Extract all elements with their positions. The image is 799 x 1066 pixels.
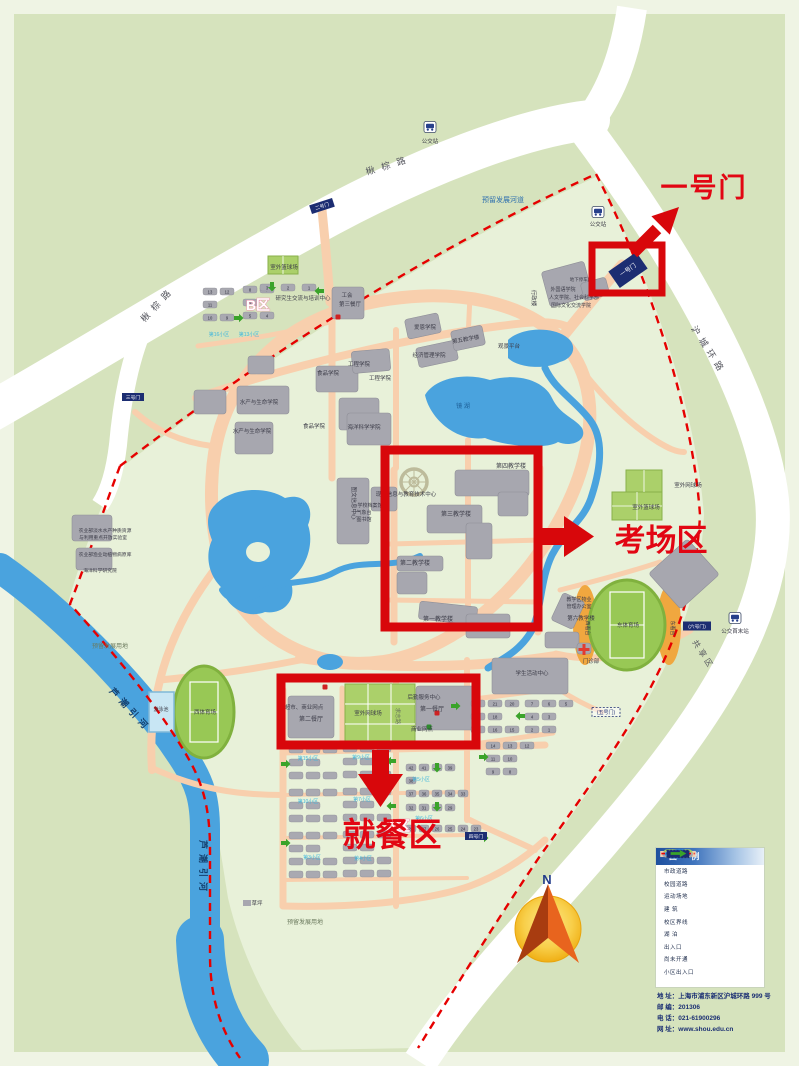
- campus-map: 4241403938373635343332313029282726252423…: [0, 0, 799, 1066]
- map-label: 预留发展河道: [482, 195, 524, 204]
- dorm-number: 15: [510, 727, 515, 732]
- gate-label: 四号门: [469, 833, 484, 840]
- legend-item-label: 出入口: [664, 943, 682, 951]
- map-label: 第7小区: [353, 796, 371, 803]
- map-label: 门诊部: [583, 657, 600, 665]
- map-label: 工程学院: [369, 374, 392, 382]
- dorm-block: [323, 789, 337, 796]
- legend-item: 校区界线: [656, 915, 764, 928]
- bus-icon-wheel: [599, 214, 601, 216]
- map-label: 第三教学楼: [441, 510, 471, 518]
- building: [248, 356, 274, 374]
- building: [316, 366, 358, 392]
- dorm-number: 13: [208, 289, 213, 294]
- dorm-number: 32: [409, 805, 414, 810]
- bus-icon-wheel: [427, 129, 429, 131]
- map-label: 水产与生命学院: [233, 427, 272, 435]
- legend-item: 小区出入口: [656, 966, 764, 979]
- legend-item: 校园道路: [656, 878, 764, 891]
- dorm-number: 31: [422, 805, 427, 810]
- dorm-block: [360, 870, 374, 877]
- dorm-block: [306, 772, 320, 779]
- building: [194, 390, 226, 414]
- gate-label: (六号门): [688, 623, 706, 630]
- map-label: 学生活动中心: [515, 669, 549, 677]
- gate-marker: (六号门): [683, 622, 711, 631]
- map-label: 第三餐厅: [339, 300, 362, 308]
- map-label: 第六教学楼: [567, 614, 595, 622]
- map-label: 商业网点: [411, 725, 434, 733]
- map-label: 公交站: [590, 220, 607, 228]
- map-label: 第13小区: [239, 331, 260, 338]
- compass-north-label: N: [542, 872, 551, 887]
- building: [76, 548, 112, 570]
- dorm-number: 24: [461, 826, 466, 831]
- legend-item: 运动场地: [656, 890, 764, 903]
- legend-item-label: 校园道路: [664, 880, 688, 888]
- bus-icon-body: [731, 615, 739, 619]
- bus-stop-icon: [729, 613, 741, 624]
- dorm-block: [289, 815, 303, 822]
- legend-item-label: 建 筑: [664, 905, 678, 913]
- dorm-block: [323, 772, 337, 779]
- map-label: 观景平台: [498, 342, 521, 350]
- dorm-number: 11: [491, 756, 496, 761]
- map-label: 海洋科学学院: [347, 423, 381, 431]
- legend-item: 尚未开通: [656, 953, 764, 966]
- map-label: 第一教学楼: [423, 615, 453, 623]
- contact-line: 网 址：www.shou.edu.cn: [657, 1024, 797, 1035]
- dorm-number: 37: [409, 791, 414, 796]
- dorm-block: [323, 815, 337, 822]
- bus-icon-wheel: [595, 214, 597, 216]
- dorm-number: 36: [422, 791, 427, 796]
- dorm-block: [306, 845, 320, 852]
- bus-icon-wheel: [732, 620, 734, 622]
- dorm-block: [377, 857, 391, 864]
- map-label: 西体育场: [194, 708, 217, 716]
- map-label: 东看台: [669, 620, 676, 635]
- legend-item-label: 市政道路: [664, 867, 688, 875]
- map-label: 国际文化交流学院: [551, 302, 591, 309]
- dorm-block: [306, 815, 320, 822]
- map-label: 农业部淡水水产种质资源: [79, 527, 132, 534]
- map-label: 东体育场: [617, 621, 640, 629]
- dorm-number: 10: [208, 315, 213, 320]
- dorm-number: 29: [448, 805, 453, 810]
- gate-label: 三号门: [126, 394, 141, 401]
- community-entrance-swatch-icon: [656, 848, 700, 860]
- poi-marker: [336, 315, 341, 320]
- map-label: 与利用重点开放实验室: [79, 534, 127, 541]
- map-label: 食品学院: [303, 422, 326, 430]
- building: [466, 523, 492, 559]
- map-label: 室外篮球场: [632, 503, 660, 511]
- map-label: 镜 湖: [456, 402, 470, 410]
- dorm-block: [289, 858, 303, 865]
- dorm-number: 16: [493, 727, 498, 732]
- map-label: 教学区物业: [566, 596, 591, 603]
- dorm-block: [289, 832, 303, 839]
- legend-item-label: 湖 泊: [664, 930, 678, 938]
- dorm-block: [289, 871, 303, 878]
- dorm-block: [306, 832, 320, 839]
- map-label: 海洋科学研究院: [83, 567, 117, 574]
- bus-icon-wheel: [736, 620, 738, 622]
- dorm-block: [343, 870, 357, 877]
- map-label: 后勤服务中心: [407, 693, 441, 701]
- map-label: 工会: [341, 291, 353, 299]
- map-label: 西看台: [584, 620, 591, 635]
- map-label: 公交站: [422, 137, 439, 145]
- bus-icon-wheel: [431, 129, 433, 131]
- dorm-number: 11: [208, 302, 213, 307]
- poi-marker: [323, 685, 328, 690]
- map-label: 预留发展用地: [92, 642, 128, 650]
- map-label: 超市、商业网点: [285, 703, 324, 711]
- bus-stop-icon: [592, 207, 604, 218]
- dorm-block: [289, 772, 303, 779]
- dorm-block: [323, 858, 337, 865]
- map-label: 求志路: [394, 708, 402, 725]
- lake-island: [246, 542, 270, 562]
- contact-info: 地 址：上海市浦东新区沪城环路 999 号邮 编：201306电 话：021-6…: [657, 991, 797, 1035]
- map-label: 第4小区: [354, 855, 372, 862]
- dorm-number: 25: [448, 826, 453, 831]
- map-label: 第5小区: [412, 776, 430, 783]
- map-label: 气象台: [356, 509, 371, 516]
- legend-item: 市政道路: [656, 865, 764, 878]
- building: [235, 422, 273, 454]
- dorm-block: [306, 789, 320, 796]
- map-label: 第15小区: [298, 755, 319, 762]
- map-label: 第10小区: [298, 798, 319, 805]
- map-label: 第一餐厅: [420, 705, 444, 713]
- map-label: 第二教学楼: [400, 559, 430, 567]
- building: [545, 632, 579, 648]
- contact-line: 邮 编：201306: [657, 1002, 797, 1013]
- bus-stop-icon: [424, 122, 436, 133]
- bus-icon-body: [594, 209, 602, 213]
- map-label: 室外篮球场: [270, 263, 298, 271]
- map-label: 学校档案馆: [357, 502, 382, 509]
- map-label: 第二餐厅: [299, 715, 323, 723]
- building: [351, 348, 391, 373]
- dorm-number: 21: [493, 701, 498, 706]
- map-label: 爱恩学院: [414, 323, 437, 331]
- legend-item-label: 尚未开通: [664, 955, 688, 963]
- map-label: 图书馆: [356, 516, 371, 523]
- map-label: 室外网球场: [354, 709, 382, 717]
- map-label: 第9小区: [352, 754, 370, 761]
- dorm-block: [289, 789, 303, 796]
- legend-item: 湖 泊: [656, 928, 764, 941]
- gate1-annotation-label: 一号门: [661, 173, 748, 203]
- exam-arrow-shaft: [536, 528, 564, 545]
- map-label: 研究生交流与培训中心: [275, 294, 331, 302]
- map-label: 管理办公室: [566, 603, 591, 610]
- dorm-number: 20: [510, 701, 515, 706]
- map-label: 草坪: [251, 899, 263, 907]
- dorm-number: 18: [493, 714, 498, 719]
- map-label: 外国语学院: [550, 286, 575, 293]
- legend-items: 市政道路校园道路运动场地建 筑校区界线湖 泊出入口尚未开通小区出入口: [656, 865, 764, 978]
- map-label: 芦潮引河: [198, 840, 209, 896]
- dorm-number: 13: [508, 743, 513, 748]
- map-label: 预留发展用地: [287, 918, 323, 926]
- map-label: 行政楼: [530, 290, 538, 307]
- dining-area-annotation-label: 就餐区: [343, 816, 442, 853]
- legend-item: 建 筑: [656, 903, 764, 916]
- map-label: 农业部渔业动植物病原库: [79, 551, 132, 558]
- building: [397, 572, 427, 594]
- map-label: 游泳池: [153, 706, 168, 713]
- dorm-number: 14: [491, 743, 496, 748]
- dorm-number: 23: [474, 826, 479, 831]
- dorm-block: [323, 832, 337, 839]
- dorm-number: 41: [422, 765, 427, 770]
- dorm-number: 39: [448, 765, 453, 770]
- map-label: 经济管理学院: [412, 351, 446, 359]
- dorm-block: [306, 871, 320, 878]
- legend-item-label: 小区出入口: [664, 968, 694, 976]
- legend-item: 出入口: [656, 941, 764, 954]
- legend-item-label: 校区界线: [664, 918, 688, 926]
- building: [498, 492, 528, 516]
- legend-item-label: 运动场地: [664, 892, 688, 900]
- dorm-number: 12: [525, 743, 530, 748]
- dorm-block: [323, 871, 337, 878]
- map-label: 第3小区: [303, 854, 321, 861]
- map-label: 第16小区: [209, 331, 230, 338]
- gate-marker: 三号门: [122, 393, 144, 401]
- map-label: 公交首末站: [721, 627, 749, 635]
- dorm-number: 42: [409, 765, 414, 770]
- map-label: 工程学院: [348, 360, 371, 368]
- legend: 图 例 市政道路校园道路运动场地建 筑校区界线湖 泊出入口尚未开通小区出入口: [656, 848, 764, 987]
- lawn-marker: [243, 900, 251, 906]
- bus-icon-body: [426, 124, 434, 128]
- dorm-number: 12: [225, 289, 230, 294]
- dorm-number: 10: [508, 756, 513, 761]
- dorm-number: 35: [435, 791, 440, 796]
- map-label: 食品学院: [317, 369, 340, 377]
- dining-arrow-shaft: [372, 750, 389, 776]
- map-label: 第四教学楼: [496, 462, 526, 470]
- gate-marker: (五号门): [592, 708, 620, 717]
- dorm-number: 34: [448, 791, 453, 796]
- gate-marker: 四号门: [465, 832, 487, 840]
- map-label: 水产与生命学院: [240, 398, 279, 406]
- dorm-number: 33: [461, 791, 466, 796]
- map-label: B区: [246, 297, 270, 313]
- dorm-block: [343, 771, 357, 778]
- map-label: 室外网球场: [674, 481, 702, 489]
- contact-line: 电 话：021-61900296: [657, 1013, 797, 1024]
- exam-area-annotation-label: 考场区: [615, 523, 708, 558]
- dorm-block: [377, 870, 391, 877]
- dorm-block: [289, 845, 303, 852]
- gate-label: (五号门): [597, 709, 616, 716]
- dorm-block: [343, 788, 357, 795]
- contact-line: 地 址：上海市浦东新区沪城环路 999 号: [657, 991, 797, 1002]
